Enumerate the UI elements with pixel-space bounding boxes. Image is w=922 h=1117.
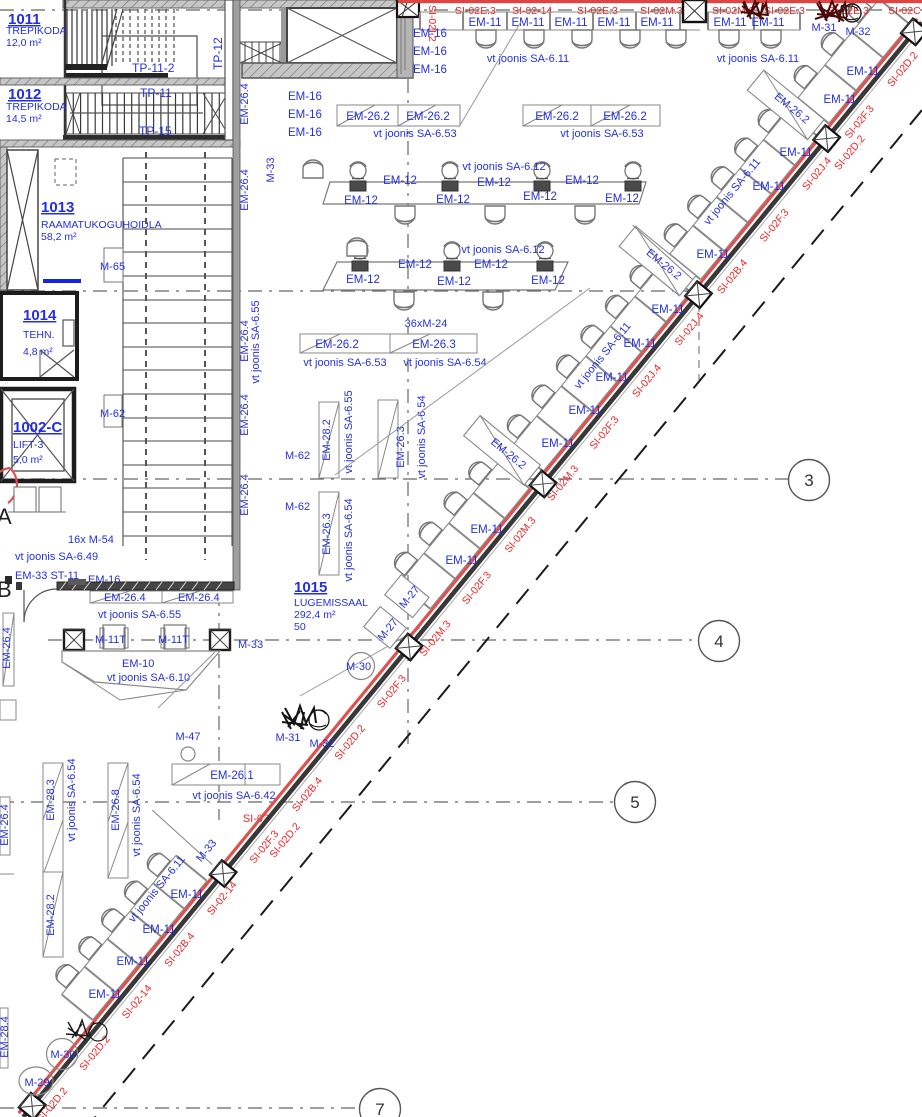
svg-text:EM-11: EM-11 xyxy=(623,338,656,350)
svg-text:1002-C: 1002-C xyxy=(13,419,62,436)
svg-text:58,2 m²: 58,2 m² xyxy=(41,231,77,243)
svg-text:vt joonis SA-6.54: vt joonis SA-6.54 xyxy=(343,498,355,581)
svg-text:EM-12: EM-12 xyxy=(477,177,511,189)
svg-text:vt joonis SA-6.53: vt joonis SA-6.53 xyxy=(373,128,456,140)
svg-text:EM-12: EM-12 xyxy=(383,175,417,187)
svg-text:TP-15: TP-15 xyxy=(139,124,172,138)
svg-text:EM-12: EM-12 xyxy=(523,191,557,203)
svg-text:14,5 m²: 14,5 m² xyxy=(6,113,42,125)
svg-text:EM-11: EM-11 xyxy=(640,17,673,29)
svg-text:M-62: M-62 xyxy=(100,408,125,420)
svg-text:vt joonis SA-6.55: vt joonis SA-6.55 xyxy=(98,609,181,621)
svg-text:EM-26.2: EM-26.2 xyxy=(535,111,578,123)
svg-text:EM-11: EM-11 xyxy=(696,249,729,261)
svg-text:EM-11: EM-11 xyxy=(88,989,121,1001)
svg-text:M-62: M-62 xyxy=(285,501,310,513)
svg-text:TREPIKODA: TREPIKODA xyxy=(6,101,67,113)
svg-text:M-11T: M-11T xyxy=(158,634,189,646)
svg-text:EM-11: EM-11 xyxy=(568,405,601,417)
svg-text:EM-11: EM-11 xyxy=(779,147,812,159)
svg-text:EM-11: EM-11 xyxy=(651,304,684,316)
svg-text:EM-11: EM-11 xyxy=(468,17,501,29)
svg-text:EM-12: EM-12 xyxy=(565,175,599,187)
svg-text:EM-26.2: EM-26.2 xyxy=(603,111,646,123)
svg-text:EM-12: EM-12 xyxy=(605,193,639,205)
svg-text:5: 5 xyxy=(630,793,639,812)
svg-text:EM-11: EM-11 xyxy=(511,17,544,29)
svg-text:SI-02M.3: SI-02M.3 xyxy=(640,5,683,17)
svg-text:TEHN.: TEHN. xyxy=(23,329,55,341)
svg-text:EM-16: EM-16 xyxy=(413,46,447,58)
svg-text:EM-16: EM-16 xyxy=(413,28,447,40)
svg-text:EM-26.4: EM-26.4 xyxy=(178,592,220,604)
svg-text:EM-28.2: EM-28.2 xyxy=(321,419,333,461)
svg-text:M-32: M-32 xyxy=(845,26,870,38)
svg-text:EM-16: EM-16 xyxy=(288,109,322,121)
svg-text:EM-11: EM-11 xyxy=(823,94,856,106)
svg-text:EM-12: EM-12 xyxy=(436,194,470,206)
svg-text:1014: 1014 xyxy=(23,307,57,324)
svg-text:EM-26.4: EM-26.4 xyxy=(104,592,146,604)
svg-text:A: A xyxy=(0,504,12,529)
svg-text:vt joonis SA-6.53: vt joonis SA-6.53 xyxy=(560,128,643,140)
svg-text:SI-02E.3: SI-02E.3 xyxy=(577,5,618,17)
svg-text:vt joonis SA-6.54: vt joonis SA-6.54 xyxy=(403,357,486,369)
svg-text:EM-11: EM-11 xyxy=(595,372,628,384)
svg-text:3: 3 xyxy=(804,471,813,490)
svg-text:M-30: M-30 xyxy=(50,1049,75,1061)
svg-text:50: 50 xyxy=(294,621,306,633)
svg-text:EM-16: EM-16 xyxy=(288,127,322,139)
svg-text:SI-02E.3: SI-02E.3 xyxy=(764,5,805,17)
svg-text:EM-11: EM-11 xyxy=(752,181,785,193)
svg-text:EM-11: EM-11 xyxy=(554,17,587,29)
svg-text:EM-11: EM-11 xyxy=(445,555,478,567)
svg-text:vt joonis SA-6.54: vt joonis SA-6.54 xyxy=(131,773,143,856)
svg-text:EM-11: EM-11 xyxy=(170,889,203,901)
svg-text:SI-02C: SI-02C xyxy=(888,5,921,17)
svg-text:EM-26.3: EM-26.3 xyxy=(395,426,407,468)
svg-text:EM-28.3: EM-28.3 xyxy=(45,779,57,821)
svg-text:EM-26.4: EM-26.4 xyxy=(239,169,251,211)
svg-text:EM-11: EM-11 xyxy=(142,924,175,936)
svg-text:vt joonis SA-6.10: vt joonis SA-6.10 xyxy=(107,672,190,684)
svg-text:EM-26.2: EM-26.2 xyxy=(406,111,449,123)
svg-text:16x M-54: 16x M-54 xyxy=(68,534,114,546)
svg-text:EM-26.4: EM-26.4 xyxy=(239,394,251,436)
svg-text:EM-12: EM-12 xyxy=(346,274,380,286)
svg-text:EM-11: EM-11 xyxy=(116,956,149,968)
svg-text:LUGEMISSAAL: LUGEMISSAAL xyxy=(294,597,368,609)
svg-text:EM-10: EM-10 xyxy=(122,658,154,670)
svg-text:EM-16: EM-16 xyxy=(288,91,322,103)
svg-text:LIFT-3: LIFT-3 xyxy=(13,439,44,451)
svg-text:M-62: M-62 xyxy=(285,450,310,462)
svg-text:vt joonis SA-6.42: vt joonis SA-6.42 xyxy=(192,790,275,802)
svg-text:EM-26.2: EM-26.2 xyxy=(315,339,358,351)
svg-text:M-33: M-33 xyxy=(238,639,263,651)
svg-text:292,4 m²: 292,4 m² xyxy=(294,609,336,621)
svg-text:1013: 1013 xyxy=(41,199,74,216)
svg-text:vt joonis SA-6.54: vt joonis SA-6.54 xyxy=(66,758,78,841)
svg-text:M-31: M-31 xyxy=(811,22,836,34)
svg-text:EM-11: EM-11 xyxy=(713,17,746,29)
svg-text:EM-26.4: EM-26.4 xyxy=(239,474,251,516)
svg-text:M-33: M-33 xyxy=(265,157,277,182)
svg-text:EM-26.4: EM-26.4 xyxy=(0,804,11,846)
svg-text:M-30: M-30 xyxy=(346,661,371,673)
svg-text:EM-12: EM-12 xyxy=(398,259,432,271)
svg-text:EM-26.3: EM-26.3 xyxy=(412,339,455,351)
svg-text:12,0 m²: 12,0 m² xyxy=(6,37,42,49)
svg-text:vt joonis SA-6.12: vt joonis SA-6.12 xyxy=(461,244,544,256)
svg-text:M-29: M-29 xyxy=(24,1077,49,1089)
svg-text:EM-11: EM-11 xyxy=(846,66,879,78)
svg-text:EM-12: EM-12 xyxy=(437,276,471,288)
svg-text:EM-12: EM-12 xyxy=(531,275,565,287)
svg-text:vt joonis SA-6.12: vt joonis SA-6.12 xyxy=(462,161,545,173)
svg-text:SI-02E.3: SI-02E.3 xyxy=(455,5,496,17)
svg-text:EM-16: EM-16 xyxy=(413,64,447,76)
svg-text:TP-12: TP-12 xyxy=(211,37,225,70)
svg-text:M-31: M-31 xyxy=(275,732,300,744)
svg-text:M-47: M-47 xyxy=(175,731,200,743)
svg-text:7: 7 xyxy=(375,1100,384,1117)
svg-text:4,8 m²: 4,8 m² xyxy=(23,346,53,358)
svg-text:EM-26.8: EM-26.8 xyxy=(110,789,122,831)
svg-text:4: 4 xyxy=(714,632,723,651)
svg-text:EM-12: EM-12 xyxy=(344,195,378,207)
svg-text:EM-26.3: EM-26.3 xyxy=(321,513,333,555)
svg-text:TP-11: TP-11 xyxy=(140,86,172,100)
svg-text:EM-28.2: EM-28.2 xyxy=(45,894,57,936)
svg-text:EM-26.1: EM-26.1 xyxy=(210,770,253,782)
svg-text:vt joonis SA-6.11: vt joonis SA-6.11 xyxy=(717,53,799,65)
svg-text:EM-26.4: EM-26.4 xyxy=(239,83,251,125)
svg-text:M-65: M-65 xyxy=(100,261,125,273)
svg-text:1015: 1015 xyxy=(294,579,327,596)
svg-text:EM-11: EM-11 xyxy=(541,438,574,450)
svg-text:SI-02-14: SI-02-14 xyxy=(512,5,552,17)
svg-text:EM-26.2: EM-26.2 xyxy=(346,111,389,123)
svg-text:M-11T: M-11T xyxy=(95,634,126,646)
svg-text:vt joonis SA-6.49: vt joonis SA-6.49 xyxy=(15,551,98,563)
svg-text:EM-26.4: EM-26.4 xyxy=(1,627,13,669)
svg-text:EM-12: EM-12 xyxy=(474,259,508,271)
svg-text:EM-11: EM-11 xyxy=(597,17,630,29)
svg-text:vt joonis SA-6.55: vt joonis SA-6.55 xyxy=(250,300,262,383)
svg-text:TREPIKODA: TREPIKODA xyxy=(6,25,67,37)
svg-text:EM-28.4: EM-28.4 xyxy=(0,1016,11,1058)
svg-text:5,0 m²: 5,0 m² xyxy=(13,454,43,466)
svg-text:EM-11: EM-11 xyxy=(751,17,784,29)
svg-text:TP-11-2: TP-11-2 xyxy=(132,61,175,75)
svg-text:M-32: M-32 xyxy=(309,738,334,750)
svg-text:vt joonis SA-6.53: vt joonis SA-6.53 xyxy=(303,357,386,369)
svg-text:36xM-24: 36xM-24 xyxy=(405,318,448,330)
svg-text:EM-11: EM-11 xyxy=(470,524,503,536)
